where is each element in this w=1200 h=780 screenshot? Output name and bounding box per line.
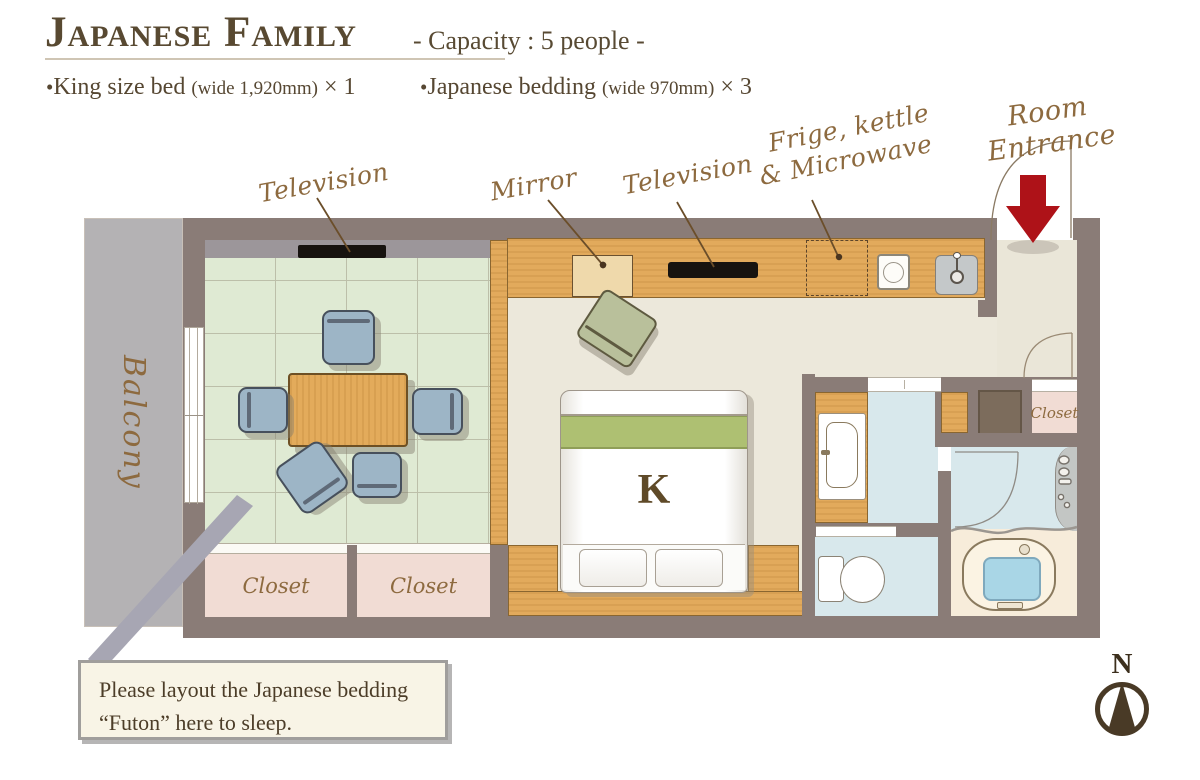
note-line2: “Futon” here to sleep. <box>99 706 427 739</box>
bed-pillow-right <box>655 549 723 587</box>
closet-left: Closet <box>205 554 347 617</box>
floor-chair-left <box>238 387 288 433</box>
dining-table <box>288 373 408 447</box>
entrance-arrow-icon <box>1006 175 1060 243</box>
legend-item-japanese-bedding: •Japanese bedding (wide 970mm) × 3 <box>420 74 752 101</box>
wall-corridor-foot <box>978 300 997 317</box>
floor-chair-right <box>412 388 463 435</box>
legend-count: × 3 <box>714 74 752 100</box>
label-room-entrance: Room Entrance <box>981 87 1118 169</box>
toilet-bowl <box>840 556 885 603</box>
door-seam <box>904 380 905 389</box>
open-shelf <box>978 390 1022 437</box>
nightstand-right <box>748 545 799 592</box>
window-handle <box>185 415 203 416</box>
compass-circle <box>1098 685 1147 734</box>
compass-needle <box>1108 682 1136 731</box>
stove-plate <box>877 254 910 290</box>
wall-bath-left <box>802 374 815 638</box>
balcony: Balcony <box>84 218 183 627</box>
label-television-left: Television <box>256 157 390 208</box>
wall-top <box>195 218 986 240</box>
closet-entrance: Closet <box>1032 392 1077 433</box>
bathtub <box>962 538 1056 611</box>
faucet-base <box>950 270 964 284</box>
wood-edge-strip <box>490 240 508 545</box>
bathtub-faucet <box>1019 544 1030 555</box>
balcony-window <box>184 327 204 503</box>
balcony-label: Balcony <box>116 355 151 490</box>
legend-name: King size bed <box>53 74 191 100</box>
bed-green-band <box>561 416 747 449</box>
vanity-basin <box>826 422 858 488</box>
label-fridge: Frige, kettle & Microwave <box>766 97 938 190</box>
floorplan-page: Japanese Family - Capacity : 5 people - … <box>0 0 1200 780</box>
window-frame-line <box>197 328 198 504</box>
label-television-right: Television <box>620 149 754 200</box>
label-mirror: Mirror <box>488 163 579 207</box>
capacity-text: - Capacity : 5 people - <box>413 26 645 56</box>
closet-right: Closet <box>357 554 490 617</box>
note-line1: Please layout the Japanese bedding <box>99 673 427 706</box>
legend-name: Japanese bedding <box>427 74 602 100</box>
wall-under-top-row <box>935 433 1077 447</box>
bathtub-step <box>997 602 1023 609</box>
wall-divider <box>968 390 978 437</box>
nightstand-left <box>508 545 558 592</box>
chair-backrest <box>450 393 454 430</box>
legend-count: × 1 <box>318 74 356 100</box>
legend-detail: (wide 1,920mm) <box>191 78 318 99</box>
vanity-faucet <box>821 450 830 455</box>
vanity-sink <box>818 413 866 500</box>
headboard-strip <box>508 591 803 616</box>
closet-label: Closet <box>1031 404 1079 422</box>
shower-panel <box>1055 447 1077 531</box>
kitchen-sink <box>935 255 978 295</box>
king-bed: K <box>560 390 748 593</box>
chair-backrest <box>247 392 251 428</box>
wall-closet-right-end <box>490 545 508 617</box>
bed-mark: K <box>561 466 747 514</box>
fridge-dashed-outline <box>806 240 868 296</box>
shower-door-gap <box>938 447 951 471</box>
legend-item-king-bed: •King size bed (wide 1,920mm) × 1 <box>46 74 356 101</box>
bed-pillow-left <box>579 549 647 587</box>
wood-cubby <box>941 392 968 433</box>
title-underline <box>45 58 505 60</box>
floor-chair-top <box>322 310 375 365</box>
note-box: Please layout the Japanese bedding “Futo… <box>78 660 448 740</box>
floor-chair-bottom-right <box>352 452 402 498</box>
page-title: Japanese Family <box>45 8 357 57</box>
vanity-sliding-door <box>868 377 941 392</box>
entrance-corridor-floor <box>997 240 1077 377</box>
toilet-sliding-door <box>816 526 896 537</box>
chair-backrest <box>327 319 370 323</box>
window-frame-line <box>189 328 190 504</box>
closet-entrance-door <box>1032 379 1077 392</box>
stove-burner <box>883 262 904 283</box>
television-counter <box>668 262 758 278</box>
legend-detail: (wide 970mm) <box>602 78 714 99</box>
compass-north-label: N <box>1102 648 1142 681</box>
closet-label: Closet <box>242 574 309 598</box>
bathtub-water <box>983 557 1041 601</box>
television-tatami <box>298 245 386 258</box>
wall-closet-divider <box>347 545 357 617</box>
faucet-head <box>953 252 961 259</box>
wall-right <box>1077 218 1100 638</box>
chair-backrest <box>357 484 397 488</box>
closet-label: Closet <box>390 574 457 598</box>
wall-bottom <box>183 616 1100 638</box>
